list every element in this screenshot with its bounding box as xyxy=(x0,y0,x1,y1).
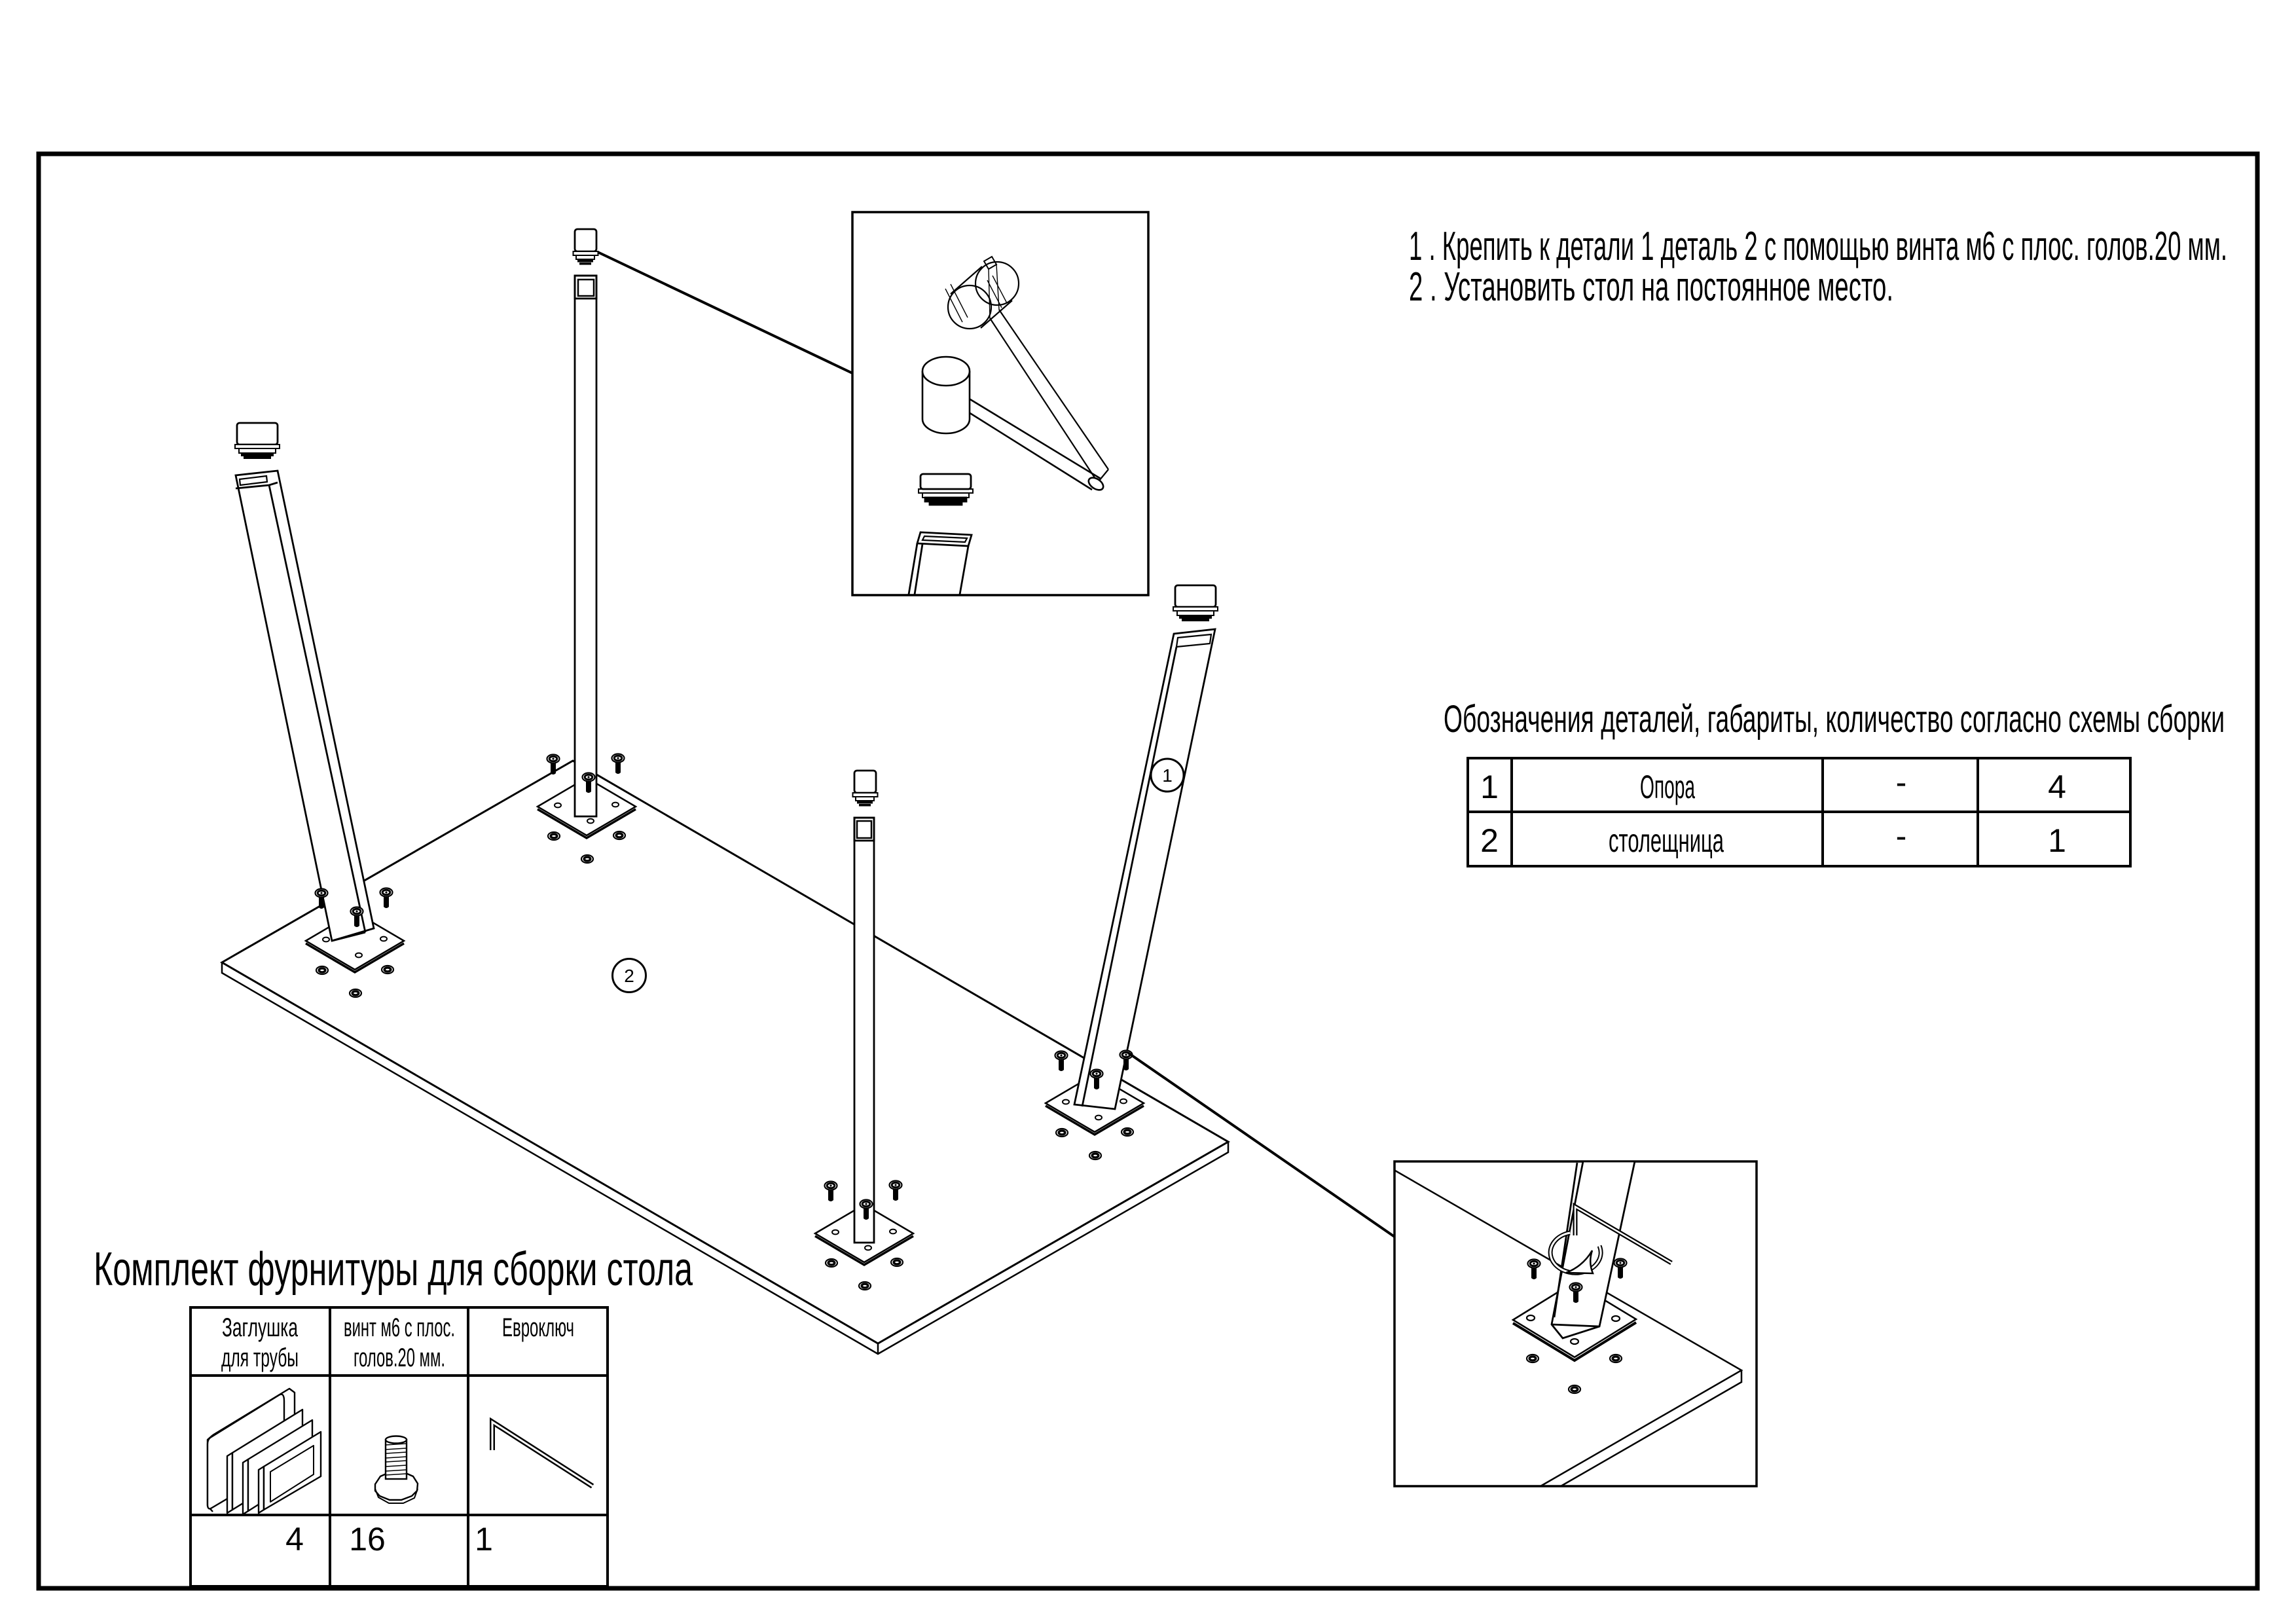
svg-text:1: 1 xyxy=(1480,769,1499,805)
svg-text:2: 2 xyxy=(1480,822,1499,859)
svg-text:столещница: столещница xyxy=(1609,822,1724,859)
svg-text:Комплект фурнитуры для сборки: Комплект фурнитуры для сборки стола xyxy=(94,1243,693,1296)
svg-text:-: - xyxy=(1896,764,1907,801)
svg-text:Евроключ: Евроключ xyxy=(502,1313,574,1342)
svg-text:4: 4 xyxy=(2048,769,2066,805)
svg-text:2 . Установить стол на постоян: 2 . Установить стол на постоянное место. xyxy=(1409,264,1893,310)
svg-text:1: 1 xyxy=(1162,765,1173,786)
svg-text:1: 1 xyxy=(2048,822,2066,859)
svg-text:1: 1 xyxy=(475,1521,493,1558)
svg-text:2: 2 xyxy=(624,966,634,986)
svg-text:Обозначения деталей, габариты,: Обозначения деталей, габариты, количеств… xyxy=(1444,698,2225,740)
svg-text:Опора: Опора xyxy=(1640,769,1695,805)
svg-text:16: 16 xyxy=(349,1521,386,1558)
svg-text:4: 4 xyxy=(285,1521,304,1558)
svg-text:для трубы: для трубы xyxy=(221,1343,299,1372)
svg-text:Заглушка: Заглушка xyxy=(222,1313,298,1342)
svg-text:винт м6 с плос.: винт м6 с плос. xyxy=(344,1313,455,1342)
svg-text:голов.20 мм.: голов.20 мм. xyxy=(354,1343,445,1372)
svg-text:-: - xyxy=(1896,818,1907,854)
svg-text:1 . Крепить к детали 1 деталь: 1 . Крепить к детали 1 деталь 2 с помощь… xyxy=(1409,224,2227,269)
